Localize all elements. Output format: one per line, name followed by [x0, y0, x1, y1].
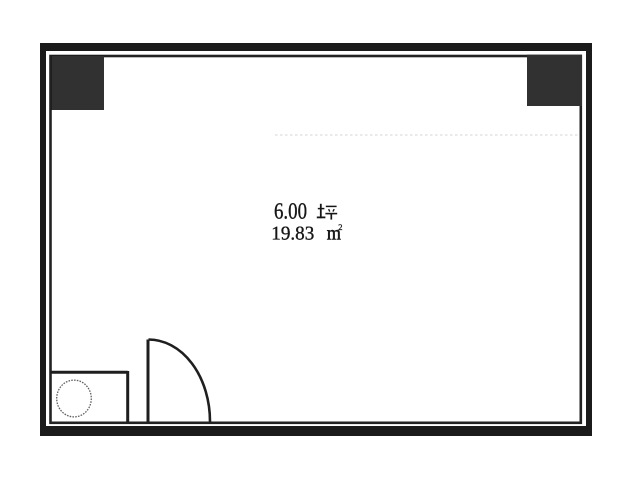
svg-text:6.00: 6.00 — [274, 199, 307, 224]
svg-text:2: 2 — [338, 222, 342, 232]
svg-text:19.83: 19.83 — [271, 224, 314, 245]
